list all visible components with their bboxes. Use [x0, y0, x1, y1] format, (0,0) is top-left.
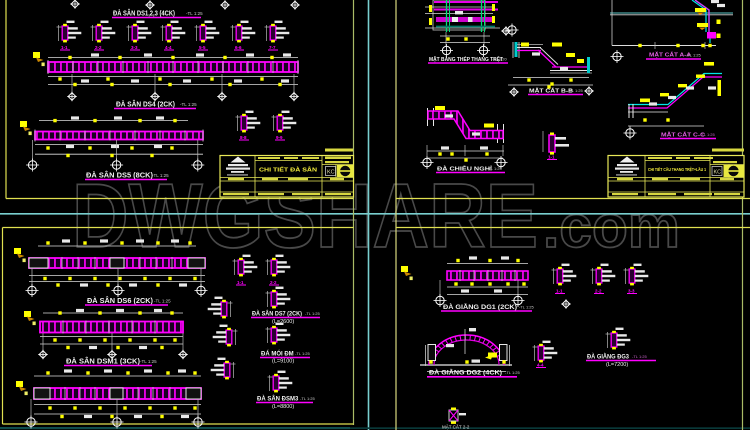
- svg-text:-TL 1:25: -TL 1:25: [519, 305, 535, 310]
- svg-text:ĐÀ SÂN DS1,2,3 (4CK): ĐÀ SÂN DS1,2,3 (4CK): [113, 9, 175, 18]
- svg-text:MẶT CẮT B-B: MẶT CẮT B-B: [529, 87, 573, 95]
- svg-text:-TL 1:25: -TL 1:25: [300, 396, 316, 401]
- svg-text:1-1: 1-1: [548, 155, 555, 160]
- svg-text:ĐÀ GIẰNG ĐG3: ĐÀ GIẰNG ĐG3: [587, 353, 630, 361]
- svg-text:ĐÀ CHIỄU NGHỈ: ĐÀ CHIỄU NGHỈ: [437, 166, 493, 173]
- svg-text:1-1: 1-1: [237, 280, 244, 285]
- svg-text:ĐÀ GIẰNG DG2 (4CK): ĐÀ GIẰNG DG2 (4CK): [429, 369, 502, 377]
- svg-text:-TL 1:25: -TL 1:25: [686, 53, 702, 58]
- svg-text:ĐÀ SÂN DS6 (2CK): ĐÀ SÂN DS6 (2CK): [87, 296, 153, 305]
- svg-text:-TL 1:25: -TL 1:25: [180, 102, 197, 107]
- svg-text:CHI TIẾT CẦU THANG TRỆT+LẦU 1: CHI TIẾT CẦU THANG TRỆT+LẦU 1: [648, 167, 706, 172]
- svg-text:MẶT CẮT A-A: MẶT CẮT A-A: [649, 51, 691, 59]
- svg-text:2-2: 2-2: [270, 280, 277, 285]
- svg-text:9-9: 9-9: [276, 135, 283, 140]
- svg-text:-TL 1:25: -TL 1:25: [152, 173, 169, 178]
- svg-text:-TL 1:25: -TL 1:25: [154, 299, 171, 304]
- svg-text:(L=9100): (L=9100): [272, 359, 294, 365]
- svg-text:8-8: 8-8: [240, 135, 247, 140]
- svg-text:7-7: 7-7: [269, 45, 276, 50]
- svg-text:3-3: 3-3: [628, 289, 635, 294]
- svg-text:ĐÁ MÓI ĐM: ĐÁ MÓI ĐM: [261, 350, 294, 358]
- svg-text:-TL 1:25: -TL 1:25: [700, 132, 716, 137]
- svg-text:MẶT CẮT 2-2: MẶT CẮT 2-2: [442, 423, 470, 430]
- svg-text:-TL 1:25: -TL 1:25: [186, 11, 203, 16]
- svg-text:1-1: 1-1: [61, 45, 68, 50]
- svg-text:4-4: 4-4: [537, 363, 544, 368]
- svg-text:-TL 1:25: -TL 1:25: [305, 311, 321, 316]
- svg-text:ĐÀ SÂN ĐSM3: ĐÀ SÂN ĐSM3: [257, 396, 299, 403]
- svg-text:MẶT CẮT C-C: MẶT CẮT C-C: [661, 131, 705, 139]
- svg-text:(L=8800): (L=8800): [272, 404, 294, 410]
- svg-text:ĐÀ SÂN DS7 (2CK): ĐÀ SÂN DS7 (2CK): [252, 311, 302, 318]
- svg-text:CHI TIẾT ĐÀ SÂN: CHI TIẾT ĐÀ SÂN: [259, 167, 318, 174]
- svg-text:ĐÀ SÂN DSM1 (3CK): ĐÀ SÂN DSM1 (3CK): [66, 357, 140, 366]
- svg-text:ĐÀ SÂN DS4 (2CK): ĐÀ SÂN DS4 (2CK): [116, 100, 175, 109]
- svg-text:-TL 1:25: -TL 1:25: [295, 351, 311, 356]
- svg-text:2-2: 2-2: [595, 289, 602, 294]
- svg-text:(L=7200): (L=7200): [606, 362, 628, 368]
- svg-text:-TL 1:25: -TL 1:25: [505, 370, 521, 375]
- svg-text:KC: KC: [327, 170, 335, 176]
- svg-text:-TL 1:25: -TL 1:25: [140, 359, 157, 364]
- svg-text:.com: .com: [543, 193, 680, 260]
- svg-text:1-1: 1-1: [556, 289, 563, 294]
- svg-text:ĐÀ GIẰNG DG1 (2CK): ĐÀ GIẰNG DG1 (2CK): [443, 303, 517, 311]
- svg-text:-TL 1:25: -TL 1:25: [487, 166, 503, 171]
- svg-text:4-4: 4-4: [165, 45, 172, 50]
- svg-text:-TL 1:25: -TL 1:25: [632, 354, 648, 359]
- svg-text:3-3: 3-3: [131, 45, 138, 50]
- svg-text:2-2: 2-2: [95, 45, 102, 50]
- svg-text:6-6: 6-6: [235, 45, 242, 50]
- svg-text:KC: KC: [714, 170, 722, 176]
- svg-text:ĐÀ SÂN DS5 (8CK): ĐÀ SÂN DS5 (8CK): [86, 171, 153, 180]
- svg-text:-TL 1:20: -TL 1:20: [492, 57, 508, 62]
- svg-text:5-5: 5-5: [199, 45, 206, 50]
- svg-text:-TL 1:25: -TL 1:25: [568, 88, 584, 93]
